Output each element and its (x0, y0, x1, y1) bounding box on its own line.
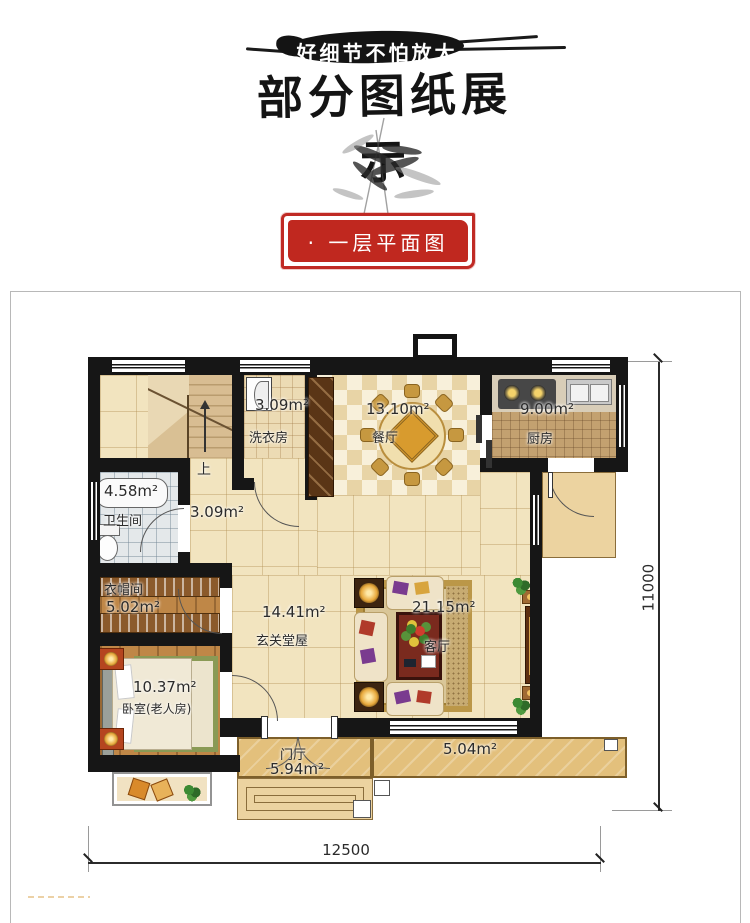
window-top-kitchen (552, 357, 610, 375)
hall-name-label: 玄关堂屋 (256, 630, 308, 649)
cloakroom-name-label: 衣帽间 (104, 579, 143, 598)
toilet-icon (97, 535, 118, 561)
living-area-label: 21.15m² (412, 598, 476, 616)
sofa-icon (386, 682, 444, 716)
step-marker (374, 780, 390, 796)
section-stamp-label: · 一层平面图 (288, 220, 468, 262)
wall-bath-top (88, 458, 190, 472)
hall-area-label: 14.41m² (262, 603, 326, 621)
sliding-door-panel (486, 440, 492, 468)
scale-dashes (28, 896, 90, 898)
dining-area-label: 13.10m² (366, 400, 430, 418)
chair-icon (404, 472, 420, 486)
wall-kitchen-left (480, 375, 492, 415)
banner-slogan: 好细节不怕放大 (292, 37, 462, 66)
window-top-laundry (240, 357, 310, 375)
wall-bath-right-a (178, 458, 190, 505)
step-marker (353, 800, 371, 818)
wall-hall-left-a (220, 563, 232, 588)
column-marker (604, 739, 618, 751)
ink-streak (448, 46, 566, 51)
foyer-area-label: 5.94m² (270, 760, 324, 778)
stairs-up-label: 上 (197, 459, 211, 479)
dimension-height-label: 11000 (640, 567, 658, 612)
terrace (372, 737, 627, 778)
sofa-icon (354, 612, 388, 682)
chair-icon (404, 384, 420, 398)
wall-hall-bottom-b (331, 718, 390, 737)
wall-kitchen-bottom-b (594, 458, 628, 472)
extension-line (88, 826, 89, 872)
wall-bedroom-bottom (88, 755, 240, 772)
kitchen-name-label: 厨房 (527, 428, 553, 447)
kitchen-area-label: 9.00m² (520, 400, 574, 418)
floor-hall-right (480, 472, 530, 575)
floor-hall-upper (317, 495, 480, 575)
flowers-icon (406, 624, 416, 634)
dimension-width-label: 12500 (320, 841, 372, 859)
nightstand-icon (98, 648, 124, 670)
window-top-stairs (112, 357, 185, 375)
wall-cloak-top (88, 563, 230, 577)
plant-icon (510, 574, 532, 596)
sliding-door-panel (476, 415, 482, 443)
chimney-flue (413, 334, 457, 360)
wall-laundry-bottom (232, 478, 254, 490)
living-name-label: 客厅 (424, 636, 450, 655)
stairs-arrow (204, 408, 206, 452)
dimension-line-right (658, 362, 660, 811)
window-bathroom (88, 482, 100, 540)
door-leaf-kitchen-back (548, 472, 553, 498)
main-door-leaf-right (331, 716, 338, 739)
plant-icon (510, 694, 532, 716)
plant-icon (182, 782, 202, 802)
laundry-area-label: 3.09m² (255, 396, 309, 414)
bedroom-name-label: 卧室(老人房) (122, 700, 191, 717)
window-kitchen-right (616, 385, 628, 447)
bamboo-ink-art (318, 110, 468, 218)
wall-living-right-a (530, 472, 542, 495)
chair-icon (448, 428, 464, 442)
terrace-area-label: 5.04m² (443, 740, 497, 758)
page: 好细节不怕放大 部分图纸展示 · 一层平面图 (0, 0, 750, 923)
nightstand-icon (98, 728, 124, 750)
cloakroom-area-label: 5.02m² (106, 598, 160, 616)
bedroom-area-label: 10.37m² (133, 678, 197, 696)
window-living-bottom (390, 718, 517, 737)
section-stamp: · 一层平面图 (281, 213, 475, 269)
window-living-right (530, 495, 542, 545)
ink-streak (452, 35, 538, 44)
wall-laundry-left (232, 375, 244, 478)
dining-name-label: 餐厅 (372, 427, 398, 446)
dimension-line-bottom (88, 862, 601, 864)
staircase (148, 375, 232, 458)
wall-living-right-b (530, 545, 542, 737)
corridor-area-label: 3.09m² (190, 503, 244, 521)
bathroom-name-label: 卫生间 (103, 510, 142, 529)
main-door-leaf-left (261, 716, 268, 739)
bathroom-area-label: 4.58m² (104, 482, 158, 500)
cabinet-icon (308, 377, 334, 497)
laundry-name-label: 洗衣房 (249, 427, 288, 446)
wall-cloak-bedroom-divider (88, 633, 232, 646)
corner-table-lamp-icon (354, 578, 384, 608)
extension-line (600, 826, 601, 872)
corner-table-lamp-icon (354, 682, 384, 712)
